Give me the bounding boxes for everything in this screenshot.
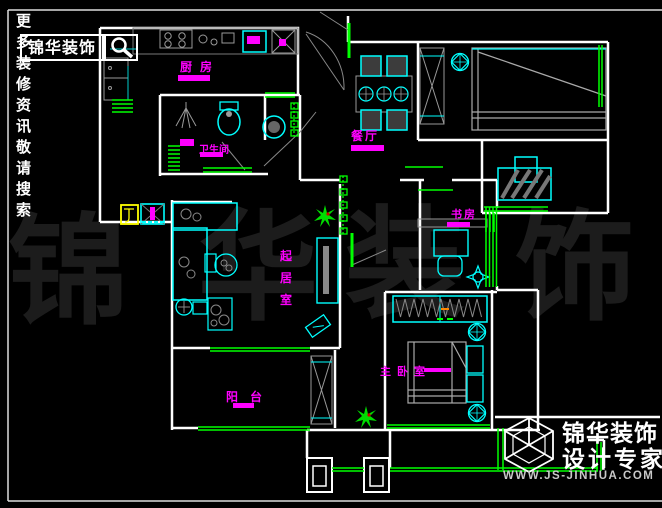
plant-icon bbox=[355, 406, 377, 428]
nightstand-icon bbox=[467, 346, 483, 373]
bed-icon bbox=[472, 48, 606, 130]
shower-icon bbox=[176, 102, 196, 128]
bedroom2-furniture bbox=[420, 48, 606, 130]
room-label-dining: 餐厅 bbox=[351, 127, 379, 144]
brand-website: WWW.JS-JINHUA.COM bbox=[503, 470, 654, 482]
closet-icon bbox=[311, 356, 332, 424]
label-underlines bbox=[178, 75, 470, 408]
equipment-boxes bbox=[121, 204, 164, 224]
stove-icon bbox=[165, 33, 185, 47]
search-icon bbox=[104, 34, 138, 61]
walls bbox=[100, 16, 660, 468]
study-furniture bbox=[418, 219, 489, 288]
tv-icon bbox=[323, 246, 329, 294]
windows-doors bbox=[112, 23, 602, 471]
room-label-living-room: 起居室 bbox=[280, 245, 296, 311]
bathroom-fixtures bbox=[176, 102, 285, 146]
chair-icon bbox=[438, 256, 462, 276]
bedside-lamp-icon bbox=[469, 324, 486, 341]
floorplan-canvas: 锦 华 装 饰 bbox=[0, 0, 662, 508]
dining-set bbox=[356, 56, 412, 130]
master-wardrobe-icon bbox=[393, 296, 487, 322]
desk-icon bbox=[434, 230, 468, 256]
room-label-balcony: 阳台 bbox=[226, 388, 274, 405]
rack-icon bbox=[306, 315, 331, 337]
hob-icon bbox=[272, 30, 295, 53]
wardrobe-icon bbox=[420, 48, 444, 124]
living-room-furniture bbox=[173, 203, 338, 337]
bay-columns bbox=[307, 458, 389, 492]
sink-icon bbox=[199, 33, 234, 45]
room-label-kitchen: 厨房 bbox=[180, 58, 220, 75]
sofa-icon bbox=[173, 203, 237, 230]
nightstand-icon bbox=[467, 375, 483, 402]
room-label-study: 书房 bbox=[451, 206, 477, 222]
search-box: 锦华装饰 bbox=[20, 34, 104, 61]
brand-subtitle: 设计专家 bbox=[562, 440, 662, 474]
bedside-lamp-icon bbox=[469, 405, 486, 422]
ceiling-lamp-icon bbox=[452, 54, 469, 71]
plant-icon bbox=[314, 205, 336, 227]
room-label-bathroom: 卫生间 bbox=[199, 141, 229, 156]
master-bedroom-furniture bbox=[393, 296, 487, 422]
table-setting-icons bbox=[359, 87, 408, 101]
service-bay bbox=[498, 157, 551, 200]
fridge-icon bbox=[104, 58, 128, 100]
room-label-master-bedroom: 主卧室 bbox=[380, 363, 431, 379]
washbasin-icon bbox=[263, 116, 285, 138]
